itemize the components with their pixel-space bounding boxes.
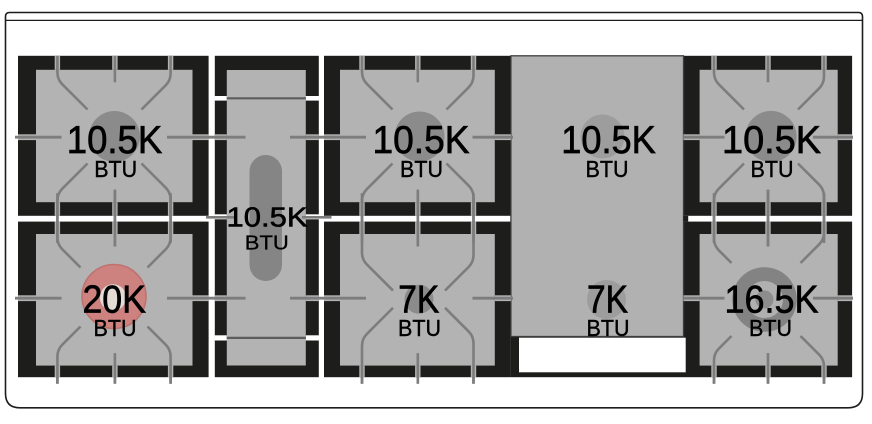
svg-text:BTU: BTU (94, 156, 137, 182)
svg-text:BTU: BTU (398, 315, 441, 341)
svg-text:BTU: BTU (751, 156, 794, 182)
svg-text:BTU: BTU (587, 315, 630, 341)
svg-text:BTU: BTU (749, 315, 792, 341)
svg-text:BTU: BTU (400, 156, 443, 182)
svg-text:10.5K: 10.5K (227, 202, 308, 233)
svg-text:BTU: BTU (245, 232, 289, 255)
svg-text:BTU: BTU (94, 315, 137, 341)
svg-text:BTU: BTU (586, 156, 629, 182)
